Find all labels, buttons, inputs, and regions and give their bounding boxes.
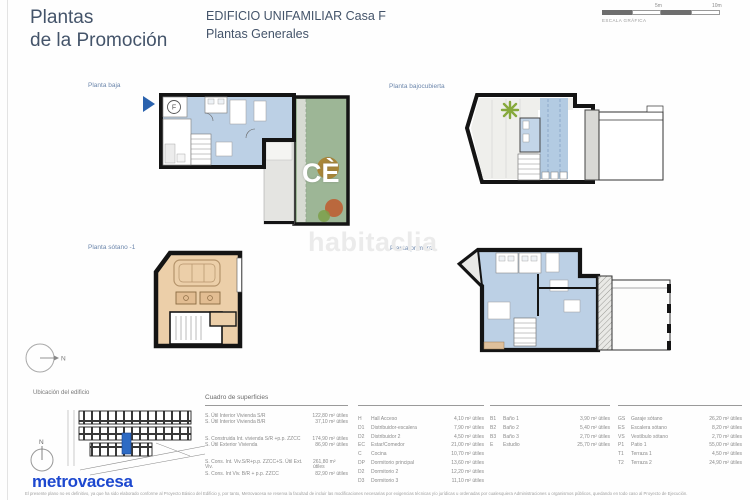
room-row: T2 Terraza 2 24,90 m² útiles (618, 461, 742, 466)
room-code: VS (618, 435, 631, 440)
room-value: 5,40 m² útiles (564, 426, 610, 431)
table-rule (205, 405, 348, 406)
bed-icon (546, 253, 559, 272)
rooms-group-b: B1 Baño 1 3,90 m² útiles B2 Baño 2 5,40 … (490, 417, 610, 452)
room-name: Distribuidor 2 (371, 435, 438, 440)
surface-value: 261,80 m² útiles (313, 460, 348, 470)
room-code: T1 (618, 452, 631, 457)
page-subtitle: EDIFICIO UNIFAMILIAR Casa F Plantas Gene… (206, 7, 386, 43)
north-label: N (61, 356, 66, 363)
surface-value: 37,10 m² útiles (315, 420, 348, 425)
room-value: 24,90 m² útiles (696, 461, 742, 466)
table-rule (358, 405, 484, 406)
room-value: 21,00 m² útiles (438, 443, 484, 448)
room-value: 8,20 m² útiles (696, 426, 742, 431)
room-name: Escalera sótano (631, 426, 696, 431)
room-code: D1 (358, 426, 371, 431)
room-value: 11,10 m² útiles (438, 479, 484, 484)
planta-bajocubierta-drawing (462, 90, 670, 198)
house-marker-letter: F (172, 105, 176, 112)
terrace-area (612, 280, 671, 350)
compass-icon: N (24, 340, 68, 376)
disclaimer-text: El presente plano no es definitivo, ya q… (25, 491, 741, 496)
scale-caption: ESCALA GRÁFICA (602, 18, 646, 23)
room-code: C (358, 452, 371, 457)
highlighted-building (122, 433, 131, 454)
room-value: 25,70 m² útiles (564, 443, 610, 448)
surface-summary-row: S. Útil Exterior Vivienda 86,90 m² útile… (205, 443, 348, 448)
scale-segment (691, 10, 720, 15)
site-map (60, 408, 208, 476)
room-row: P1 Patio 1 55,00 m² útiles (618, 443, 742, 448)
room-code: D2 (358, 435, 371, 440)
surface-label: S. Cons. Int. Viv.S/R+p.p. ZZCC+S. Útil … (205, 460, 313, 470)
room-code: D3 (358, 479, 371, 484)
bed-icon (488, 302, 510, 319)
room-code: B2 (490, 426, 503, 431)
rooms-group-c: GS Garaje sótano 26,20 m² útiles ES Esca… (618, 417, 742, 470)
room-name: Vestíbulo sótano (631, 435, 696, 440)
scale-segment (632, 10, 661, 15)
label-planta-bajocubierta: Planta bajocubierta (389, 83, 445, 90)
room-name: Patio 1 (631, 443, 696, 448)
scale-tick-5m: 5m (655, 3, 662, 9)
surface-summary-row: S. Cons. Int. Viv.S/R+p.p. ZZCC+S. Útil … (205, 460, 348, 470)
room-value: 7,90 m² útiles (438, 426, 484, 431)
label-planta-baja: Planta baja (88, 82, 121, 89)
scale-segment (661, 10, 691, 15)
room-value: 4,50 m² útiles (438, 435, 484, 440)
room-code: B1 (490, 417, 503, 422)
room-row: VS Vestíbulo sótano 2,70 m² útiles (618, 435, 742, 440)
sheet-name: Plantas Generales (206, 25, 386, 43)
vestibule-room (210, 312, 236, 326)
room-code: P1 (618, 443, 631, 448)
room-code: EC (358, 443, 371, 448)
room-code: ES (618, 426, 631, 431)
surface-summary-row: S. Útil Interior Vivienda B/R 37,10 m² ú… (205, 420, 348, 425)
planter-strip (484, 342, 504, 349)
room-code: T2 (618, 461, 631, 466)
room-name: Baño 2 (503, 426, 564, 431)
room-name: Dormitorio 3 (371, 479, 438, 484)
side-strip (585, 110, 599, 180)
room-row: C Cocina 10,70 m² útiles (358, 452, 484, 457)
building-name: EDIFICIO UNIFAMILIAR Casa F (206, 7, 386, 25)
terrace-area (264, 140, 294, 224)
room-code: H (358, 417, 371, 422)
sofa-icon (230, 100, 246, 124)
room-value: 2,70 m² útiles (564, 435, 610, 440)
metrovacesa-logo: metrovacesa (32, 472, 133, 492)
room-row: D3 Dormitorio 3 11,10 m² útiles (358, 479, 484, 484)
room-row: H Hall Acceso 4,10 m² útiles (358, 417, 484, 422)
stairs-icon (514, 318, 536, 346)
location-label: Ubicación del edificio (33, 390, 89, 396)
room-code: GS (618, 417, 631, 422)
page-title: Plantas de la Promoción (30, 6, 167, 52)
room-name: Terraza 2 (631, 461, 696, 466)
building-row (79, 411, 191, 424)
kitchen-counter (165, 144, 175, 163)
open-terrace-annex (599, 106, 663, 180)
north-label: N (39, 439, 44, 446)
surfaces-title: Cuadro de superficies (205, 394, 268, 401)
room-value: 2,70 m² útiles (696, 435, 742, 440)
room-name: Dormitorio 2 (371, 470, 438, 475)
room-value: 26,20 m² útiles (696, 417, 742, 422)
hatched-strip (598, 276, 612, 350)
room-value: 55,00 m² útiles (696, 443, 742, 448)
room-value: 10,70 m² útiles (438, 452, 484, 457)
room-code: DP (358, 461, 371, 466)
agency-watermark: CÈ (302, 158, 340, 189)
room-row: B1 Baño 1 3,90 m² útiles (490, 417, 610, 422)
page-title-line2: de la Promoción (30, 29, 167, 52)
room-name: Distribuidor-escalera (371, 426, 438, 431)
planta-sotano-drawing (146, 250, 246, 350)
studio-room (540, 98, 568, 179)
room-row: D2 Distribuidor 2 4,50 m² útiles (358, 435, 484, 440)
graphic-scale: 5m 10m ESCALA GRÁFICA (602, 3, 732, 29)
surfaces-summary-group: S. Útil Interior Vivienda S/R 122,80 m² … (205, 414, 348, 478)
planta-primera-drawing (452, 244, 674, 356)
room-name: Garaje sótano (631, 417, 696, 422)
page-edge-divider (7, 0, 8, 500)
stairs-icon (518, 154, 540, 180)
garage-door (237, 258, 242, 292)
surface-label: S. Útil Exterior Vivienda (205, 443, 260, 448)
room-name: Terraza 1 (631, 452, 696, 457)
room-name: Baño 1 (503, 417, 564, 422)
room-row: T1 Terraza 1 4,50 m² útiles (618, 452, 742, 457)
building-row (79, 427, 191, 440)
scale-segment (602, 10, 632, 15)
room-name: Hall Acceso (371, 417, 438, 422)
room-value: 13,60 m² útiles (438, 461, 484, 466)
room-name: Baño 3 (503, 435, 564, 440)
room-row: D2 Dormitorio 2 12,20 m² útiles (358, 470, 484, 475)
bush-icon (318, 210, 330, 222)
room-value: 3,90 m² útiles (564, 417, 610, 422)
room-row: EC Estar/Comedor 21,00 m² útiles (358, 443, 484, 448)
bed-icon (564, 300, 580, 312)
wardrobe-icon (550, 280, 568, 291)
table-icon (254, 101, 266, 121)
room-name: Estudio (503, 443, 564, 448)
label-planta-sotano: Planta sótano -1 (88, 244, 135, 251)
room-row: DP Dormitorio principal 13,60 m² útiles (358, 461, 484, 466)
room-code: B3 (490, 435, 503, 440)
dining-table-icon (216, 142, 232, 156)
room-row: ES Escalera sótano 8,20 m² útiles (618, 426, 742, 431)
room-name: Dormitorio principal (371, 461, 438, 466)
table-rule (618, 405, 742, 406)
plan-sheet-page: Plantas de la Promoción EDIFICIO UNIFAMI… (0, 0, 750, 500)
room-row: B2 Baño 2 5,40 m² útiles (490, 426, 610, 431)
surface-value: 86,90 m² útiles (315, 443, 348, 448)
room-name: Cocina (371, 452, 438, 457)
scale-tick-10m: 10m (712, 3, 722, 9)
room-name: Estar/Comedor (371, 443, 438, 448)
surface-label: S. Útil Interior Vivienda B/R (205, 420, 269, 425)
room-code: E (490, 443, 503, 448)
current-floor-arrow-icon (143, 96, 155, 112)
room-code: D2 (358, 470, 371, 475)
table-rule (490, 405, 610, 406)
map-compass-icon: N (30, 436, 60, 476)
entry-porch (460, 250, 482, 286)
surface-label: S. Cons. Int Viv. B/R + p.p. ZZCC (205, 472, 282, 477)
room-value: 4,10 m² útiles (438, 417, 484, 422)
palm-icon (502, 102, 518, 118)
page-title-line1: Plantas (30, 6, 167, 29)
room-row: B3 Baño 3 2,70 m² útiles (490, 435, 610, 440)
room-value: 4,50 m² útiles (696, 452, 742, 457)
surface-summary-row: S. Cons. Int Viv. B/R + p.p. ZZCC 82,90 … (205, 472, 348, 477)
stairs-icon (191, 134, 211, 165)
habitaclia-watermark: habitaclia (308, 227, 438, 258)
room-row: E Estudio 25,70 m² útiles (490, 443, 610, 448)
rooms-group-a: H Hall Acceso 4,10 m² útiles D1 Distribu… (358, 417, 484, 487)
room-value: 12,20 m² útiles (438, 470, 484, 475)
building-row (90, 443, 152, 456)
room-row: D1 Distribuidor-escalera 7,90 m² útiles (358, 426, 484, 431)
room-row: GS Garaje sótano 26,20 m² útiles (618, 417, 742, 422)
surface-value: 82,90 m² útiles (315, 472, 348, 477)
